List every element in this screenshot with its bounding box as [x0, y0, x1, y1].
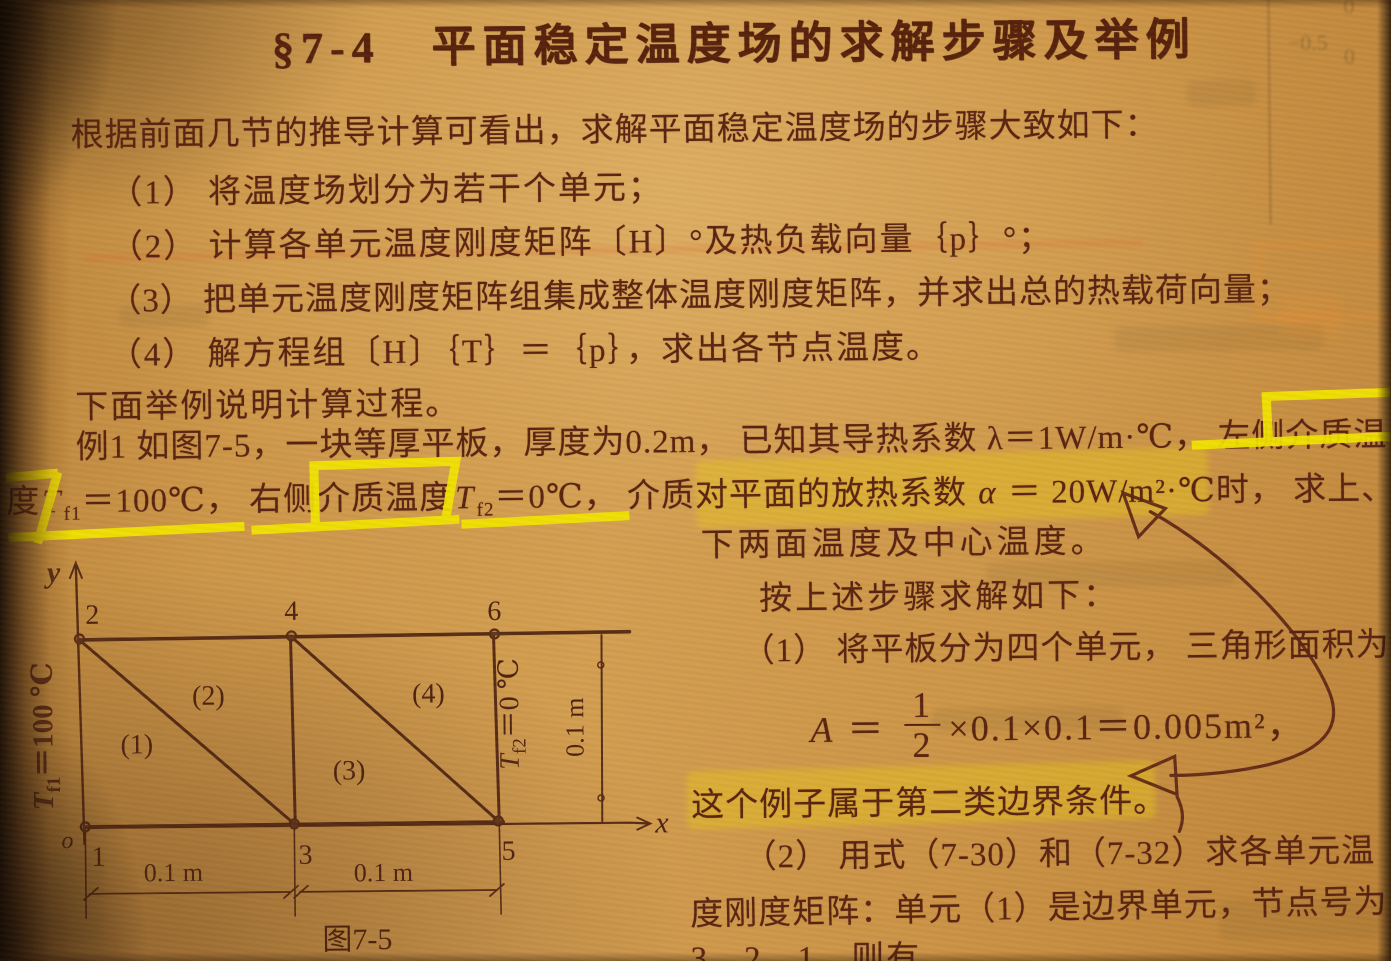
handwritten-arrow [0, 0, 1391, 961]
page-content: 0 −0.5 0 §7-4 平面稳定温度场的求解步骤及举例 根据前面几节的推导计… [0, 0, 1391, 961]
arrow-curve [1150, 510, 1334, 776]
arrowhead-top [1123, 493, 1165, 537]
book-page-photo: 0 −0.5 0 §7-4 平面稳定温度场的求解步骤及举例 根据前面几节的推导计… [0, 0, 1391, 961]
arrow-tail-stroke [1177, 796, 1183, 831]
